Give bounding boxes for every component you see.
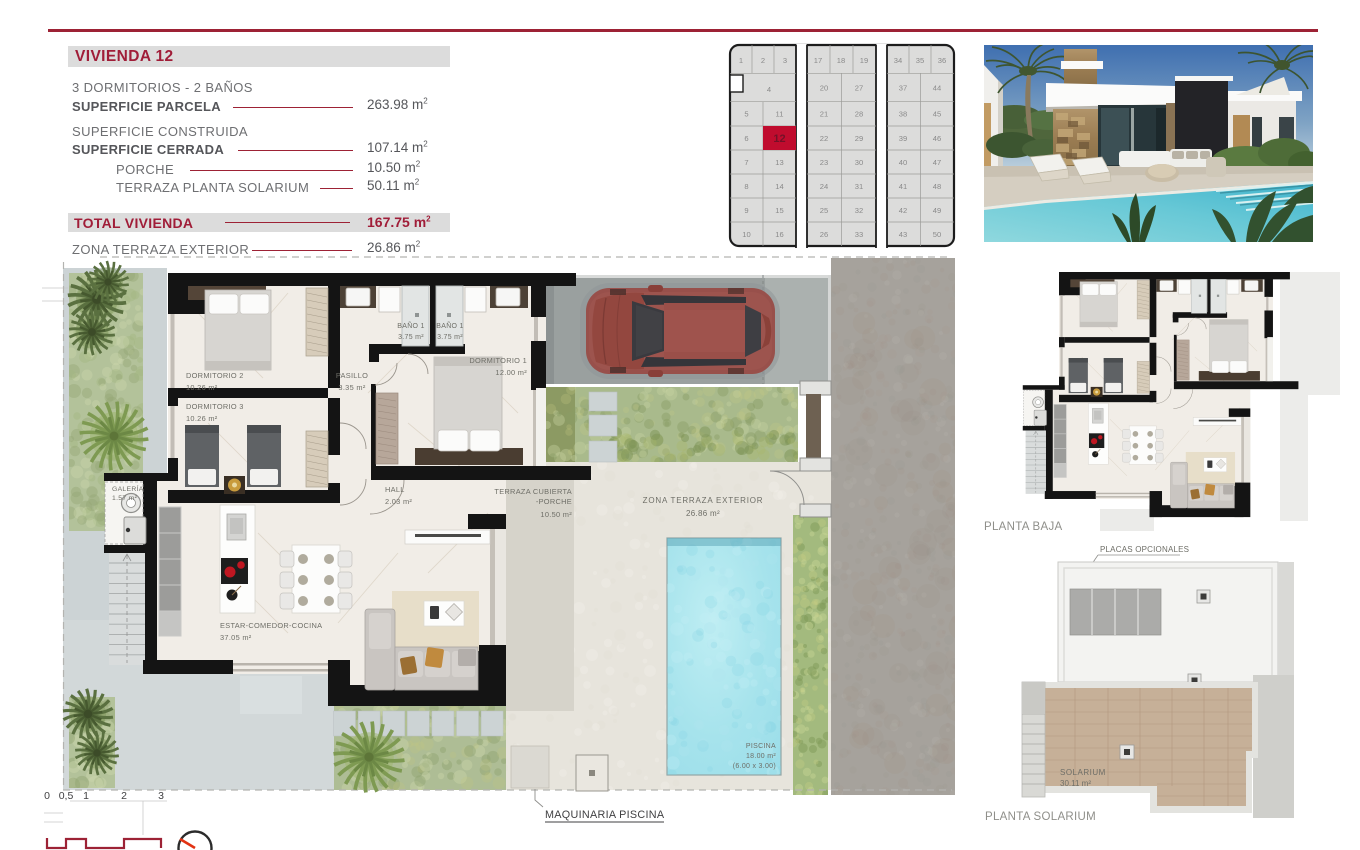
svg-text:PISCINA: PISCINA [746, 743, 776, 750]
svg-text:49: 49 [933, 206, 941, 215]
svg-text:10.26 m²: 10.26 m² [186, 383, 218, 392]
svg-text:18: 18 [837, 56, 845, 65]
svg-text:30.11 m²: 30.11 m² [1060, 779, 1091, 788]
svg-text:BAÑO 1: BAÑO 1 [436, 321, 463, 330]
svg-text:30: 30 [855, 158, 863, 167]
svg-text:48: 48 [933, 182, 941, 191]
svg-text:ESTAR-COMEDOR-COCINA: ESTAR-COMEDOR-COCINA [220, 621, 322, 630]
svg-text:47: 47 [933, 158, 941, 167]
svg-text:12: 12 [773, 133, 785, 145]
svg-text:DORMITORIO 1: DORMITORIO 1 [469, 356, 527, 365]
svg-text:PASILLO: PASILLO [336, 371, 368, 380]
svg-text:33: 33 [855, 230, 863, 239]
svg-text:6: 6 [744, 134, 748, 143]
svg-text:8: 8 [744, 182, 748, 191]
svg-text:41: 41 [899, 182, 907, 191]
svg-text:4: 4 [767, 85, 771, 94]
svg-text:DORMITORIO 2: DORMITORIO 2 [186, 371, 244, 380]
svg-text:7: 7 [744, 158, 748, 167]
svg-text:0: 0 [44, 790, 50, 802]
svg-text:10.50 m²: 10.50 m² [540, 510, 572, 519]
svg-text:38: 38 [899, 110, 907, 119]
svg-text:3.35 m²: 3.35 m² [338, 383, 365, 392]
svg-text:10: 10 [742, 230, 750, 239]
svg-text:MAQUINARIA PISCINA: MAQUINARIA PISCINA [545, 809, 665, 821]
svg-text:2: 2 [121, 790, 127, 802]
svg-text:(6.00 x 3.00): (6.00 x 3.00) [733, 763, 776, 770]
svg-text:40: 40 [899, 158, 907, 167]
svg-text:2.03 m²: 2.03 m² [385, 497, 412, 506]
svg-text:19: 19 [860, 56, 868, 65]
svg-text:39: 39 [899, 134, 907, 143]
svg-text:11: 11 [776, 110, 784, 119]
svg-text:44: 44 [933, 83, 941, 92]
svg-text:34: 34 [894, 56, 902, 65]
svg-text:17: 17 [814, 56, 822, 65]
svg-text:20: 20 [820, 83, 828, 92]
svg-text:ZONA TERRAZA EXTERIOR: ZONA TERRAZA EXTERIOR [643, 496, 764, 505]
svg-text:3: 3 [158, 790, 164, 802]
svg-text:12.00 m²: 12.00 m² [495, 368, 527, 377]
svg-text:14: 14 [775, 182, 783, 191]
svg-text:HALL: HALL [385, 485, 405, 494]
svg-text:26: 26 [820, 230, 828, 239]
svg-text:28: 28 [855, 110, 863, 119]
svg-text:45: 45 [933, 110, 941, 119]
svg-text:DORMITORIO 3: DORMITORIO 3 [186, 402, 244, 411]
svg-text:-PORCHE: -PORCHE [536, 497, 572, 506]
svg-text:TERRAZA CUBIERTA: TERRAZA CUBIERTA [494, 487, 572, 496]
svg-text:35: 35 [916, 56, 924, 65]
svg-text:50: 50 [933, 230, 941, 239]
svg-text:46: 46 [933, 134, 941, 143]
svg-text:1.57 m²: 1.57 m² [112, 495, 138, 502]
svg-text:42: 42 [899, 206, 907, 215]
svg-text:18.00 m²: 18.00 m² [746, 753, 776, 760]
svg-text:9: 9 [744, 206, 748, 215]
svg-text:1: 1 [83, 790, 89, 802]
svg-text:26.86 m²: 26.86 m² [686, 509, 720, 518]
svg-text:29: 29 [855, 134, 863, 143]
svg-text:13: 13 [775, 158, 783, 167]
svg-text:21: 21 [820, 110, 828, 119]
svg-text:3.75 m²: 3.75 m² [398, 334, 424, 341]
svg-text:5: 5 [744, 110, 748, 119]
svg-text:10.26 m²: 10.26 m² [186, 414, 218, 423]
svg-text:16: 16 [775, 230, 783, 239]
svg-text:31: 31 [855, 182, 863, 191]
svg-text:15: 15 [775, 206, 783, 215]
svg-text:37.05 m²: 37.05 m² [220, 633, 252, 642]
svg-text:3: 3 [783, 56, 787, 65]
svg-text:32: 32 [855, 206, 863, 215]
svg-text:2: 2 [761, 56, 765, 65]
svg-text:27: 27 [855, 83, 863, 92]
svg-text:36: 36 [938, 56, 946, 65]
svg-text:PLACAS OPCIONALES: PLACAS OPCIONALES [1100, 545, 1189, 554]
svg-text:1: 1 [739, 56, 743, 65]
svg-text:22: 22 [820, 134, 828, 143]
svg-text:43: 43 [899, 230, 907, 239]
svg-text:37: 37 [899, 83, 907, 92]
svg-text:23: 23 [820, 158, 828, 167]
svg-text:3.75 m²: 3.75 m² [437, 334, 463, 341]
svg-text:25: 25 [820, 206, 828, 215]
svg-text:24: 24 [820, 182, 828, 191]
svg-text:GALERÍA: GALERÍA [112, 484, 144, 493]
svg-text:BAÑO 1: BAÑO 1 [397, 321, 424, 330]
svg-text:0,5: 0,5 [59, 790, 74, 802]
svg-text:SOLARIUM: SOLARIUM [1060, 768, 1106, 777]
